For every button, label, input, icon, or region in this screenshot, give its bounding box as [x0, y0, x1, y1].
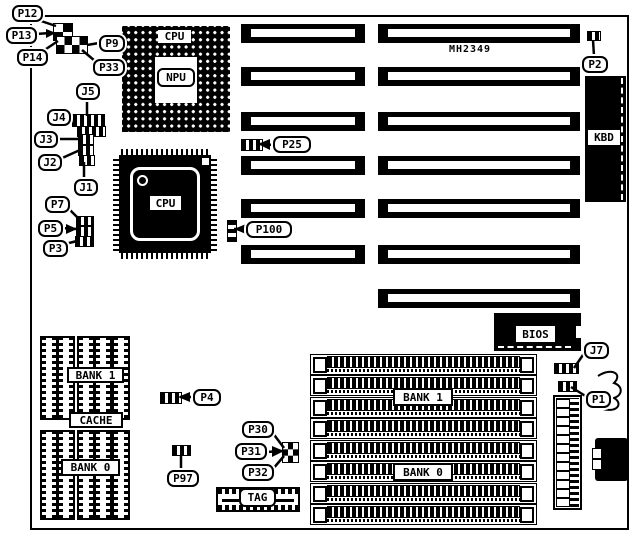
callout-p25: P25	[273, 136, 311, 153]
arrow-p100	[234, 224, 246, 234]
memory-bank0-label: BANK 0	[393, 463, 453, 481]
arrow-p25	[258, 139, 270, 150]
motherboard-diagram: CPU NPU CPU MH2349 KBD BIOS	[0, 0, 633, 535]
callout-p3: P3	[43, 240, 68, 257]
tag-label: TAG	[239, 488, 276, 507]
leader-p2	[593, 40, 594, 56]
memory-bank1-label: BANK 1	[393, 388, 453, 406]
callout-p31: P31	[235, 443, 267, 460]
cache-bank0-label: BANK 0	[61, 459, 120, 476]
callout-p32: P32	[242, 464, 274, 481]
board-model-text: MH2349	[438, 45, 502, 55]
callout-j7: J7	[584, 342, 609, 359]
callout-p33: P33	[93, 59, 125, 76]
arrow-p4	[178, 392, 190, 402]
leader-j7	[574, 352, 585, 368]
callout-p97: P97	[167, 470, 199, 487]
callout-p9: P9	[99, 35, 125, 52]
leader-p33	[82, 50, 95, 61]
cpu-qfp-label: CPU	[150, 196, 181, 210]
callout-p12: P12	[12, 5, 43, 22]
arrow-p5	[66, 224, 77, 234]
callout-j3: J3	[34, 131, 58, 148]
kbd-label: KBD	[588, 130, 620, 145]
leader-p9	[87, 43, 99, 45]
leader-j2	[60, 150, 80, 159]
npu-chip-label: NPU	[157, 68, 195, 87]
callout-j2: J2	[38, 154, 62, 171]
callout-p1: P1	[586, 391, 611, 408]
callout-p14: P14	[17, 49, 48, 66]
bios-label: BIOS	[516, 326, 555, 342]
callout-p13: P13	[6, 27, 37, 44]
leader-p1	[571, 387, 587, 397]
callout-j4: J4	[47, 109, 71, 126]
callout-p7: P7	[45, 196, 70, 213]
callout-p5: P5	[38, 220, 63, 237]
arrow-p13	[46, 29, 56, 38]
cpu-socket-label: CPU	[158, 30, 191, 43]
callout-p2: P2	[582, 56, 608, 73]
leader-p30	[272, 432, 284, 448]
callout-j1: J1	[74, 179, 98, 196]
cache-bank1-label: BANK 1	[67, 367, 124, 383]
callout-p4: P4	[193, 389, 221, 406]
callout-p100: P100	[246, 221, 292, 238]
cache-label: CACHE	[69, 412, 123, 428]
callout-j5: J5	[76, 83, 100, 100]
leader-lines	[0, 0, 633, 535]
callout-p30: P30	[242, 421, 274, 438]
leader-p12	[38, 20, 56, 26]
leader-p32	[272, 456, 284, 470]
